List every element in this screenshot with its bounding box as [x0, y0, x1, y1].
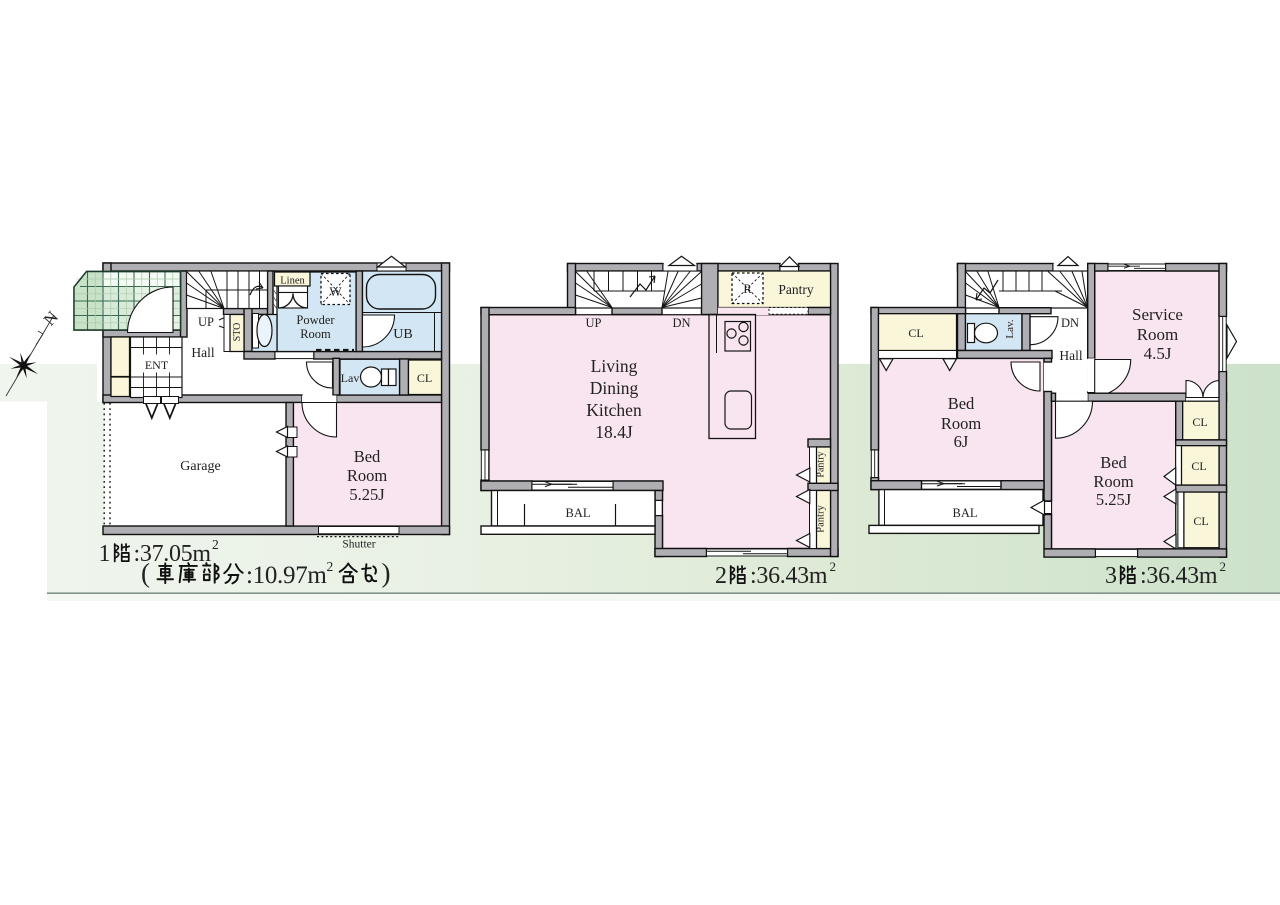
svg-text:Powder: Powder	[296, 313, 335, 327]
svg-text:Room: Room	[300, 327, 331, 341]
svg-text:CL: CL	[908, 326, 923, 340]
svg-text:Lav: Lav	[341, 371, 360, 385]
svg-text:Linen: Linen	[280, 276, 305, 287]
svg-text:UP: UP	[586, 316, 602, 330]
svg-text:4.5J: 4.5J	[1144, 344, 1172, 363]
svg-text:Kitchen: Kitchen	[586, 400, 642, 420]
svg-text:CL: CL	[1191, 459, 1206, 473]
svg-text:Hall: Hall	[191, 345, 214, 360]
svg-text:18.4J: 18.4J	[595, 422, 633, 442]
svg-text:STO: STO	[232, 323, 243, 342]
svg-text:5.25J: 5.25J	[349, 485, 385, 504]
svg-text:W: W	[329, 284, 342, 299]
svg-text:Pantry: Pantry	[778, 282, 813, 297]
svg-text:1: 1	[99, 541, 111, 567]
svg-text:Hall: Hall	[1059, 348, 1082, 363]
svg-text:UB: UB	[393, 327, 412, 342]
svg-text:Living: Living	[591, 356, 638, 376]
svg-text:UP: UP	[198, 315, 214, 329]
svg-text:DN: DN	[672, 316, 690, 330]
svg-text:Service: Service	[1132, 305, 1183, 324]
svg-text:Shutter: Shutter	[342, 539, 375, 551]
svg-text:DN: DN	[1061, 316, 1079, 330]
svg-text:CL: CL	[1192, 415, 1207, 429]
svg-text::36.43m: :36.43m	[1140, 563, 1218, 589]
svg-text:Garage: Garage	[180, 459, 220, 474]
svg-text:Room: Room	[347, 466, 388, 485]
svg-text:2: 2	[212, 537, 219, 552]
svg-text:CL: CL	[417, 371, 432, 385]
svg-text:): )	[382, 558, 391, 588]
svg-text:Bed: Bed	[354, 447, 381, 466]
svg-text:2: 2	[327, 559, 334, 574]
svg-text:3: 3	[1105, 563, 1117, 589]
svg-text:R: R	[743, 282, 752, 296]
svg-text:ENT: ENT	[145, 358, 169, 372]
svg-text::10.97m: :10.97m	[246, 562, 327, 589]
svg-text:Bed: Bed	[1100, 453, 1127, 472]
svg-text:2: 2	[830, 559, 837, 574]
svg-text:Bed: Bed	[948, 394, 975, 413]
svg-text:(: (	[141, 558, 150, 588]
svg-text:Pantry: Pantry	[816, 451, 827, 477]
svg-text:BAL: BAL	[953, 506, 978, 520]
svg-text:2: 2	[1220, 559, 1227, 574]
svg-text:Pantry: Pantry	[816, 505, 827, 533]
svg-text::36.43m: :36.43m	[750, 563, 828, 589]
svg-text:5.25J: 5.25J	[1096, 490, 1132, 509]
svg-text:Room: Room	[1093, 472, 1134, 491]
svg-text:6J: 6J	[954, 432, 969, 451]
svg-text:BAL: BAL	[566, 506, 591, 520]
svg-text:Lav.: Lav.	[1004, 319, 1016, 338]
svg-text:Dining: Dining	[590, 378, 639, 398]
svg-text:Room: Room	[941, 414, 982, 433]
svg-text:Room: Room	[1137, 325, 1179, 344]
svg-text:CL: CL	[1193, 514, 1208, 528]
svg-text:2: 2	[715, 563, 727, 589]
